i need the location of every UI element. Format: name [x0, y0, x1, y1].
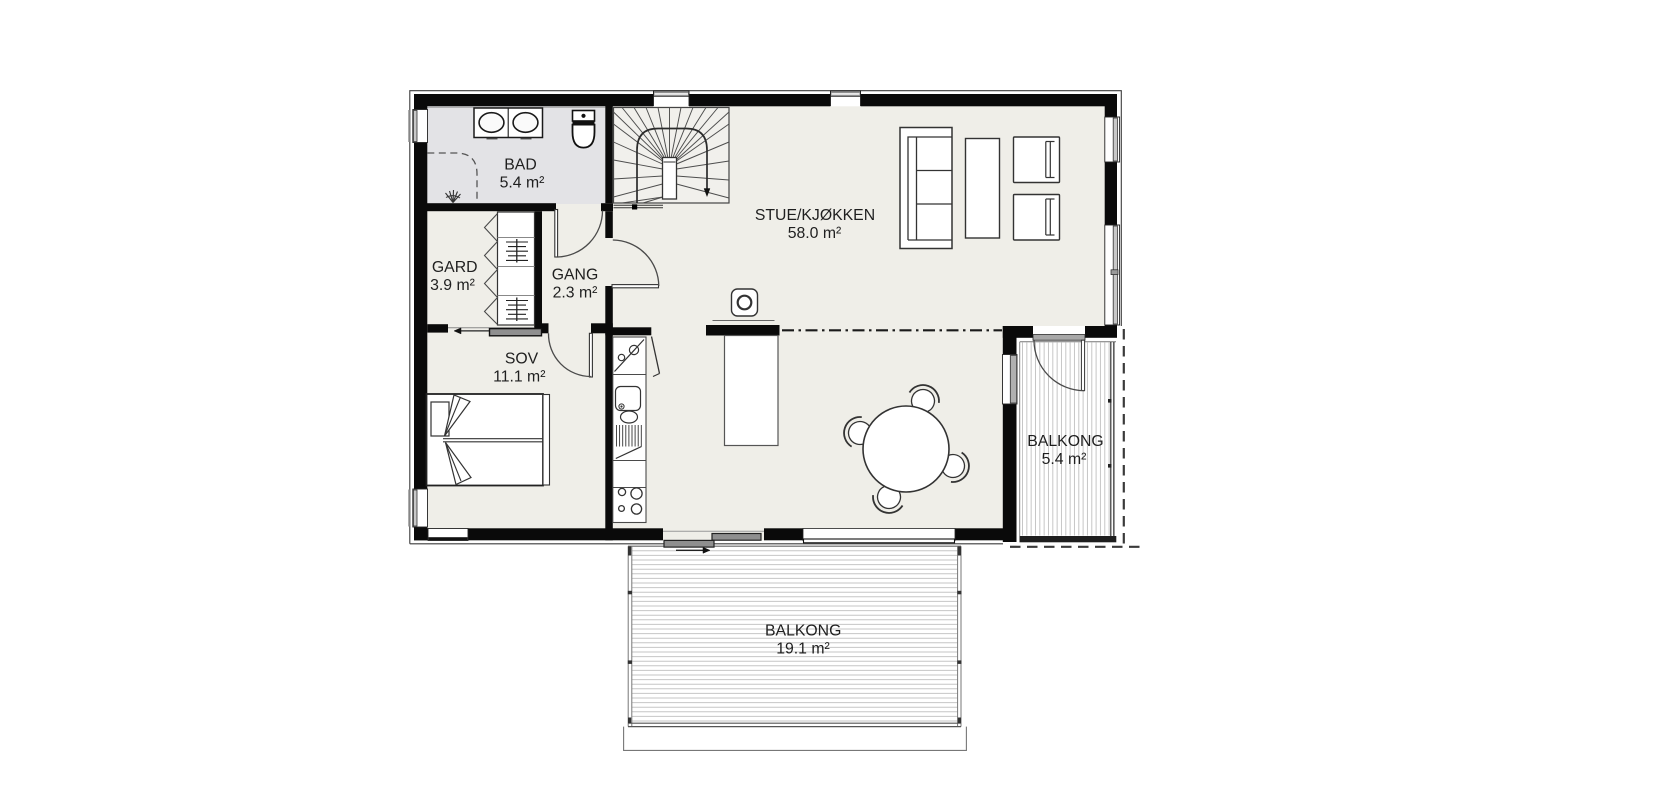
svg-text:2.3 m²: 2.3 m²: [553, 285, 598, 302]
svg-text:5.4 m²: 5.4 m²: [500, 174, 545, 191]
svg-text:11.1 m²: 11.1 m²: [493, 369, 545, 386]
svg-text:SOV: SOV: [505, 351, 539, 368]
svg-text:BALKONG: BALKONG: [765, 623, 841, 640]
svg-text:3.9 m²: 3.9 m²: [430, 277, 475, 294]
svg-text:BALKONG: BALKONG: [1027, 433, 1103, 450]
svg-text:BAD: BAD: [504, 156, 536, 173]
svg-text:58.0 m²: 58.0 m²: [788, 225, 842, 242]
svg-text:5.4 m²: 5.4 m²: [1042, 451, 1087, 468]
svg-text:GARD: GARD: [432, 259, 478, 276]
svg-text:GANG: GANG: [552, 267, 599, 284]
svg-text:19.1 m²: 19.1 m²: [776, 641, 830, 658]
svg-text:STUE/KJØKKEN: STUE/KJØKKEN: [755, 207, 875, 224]
